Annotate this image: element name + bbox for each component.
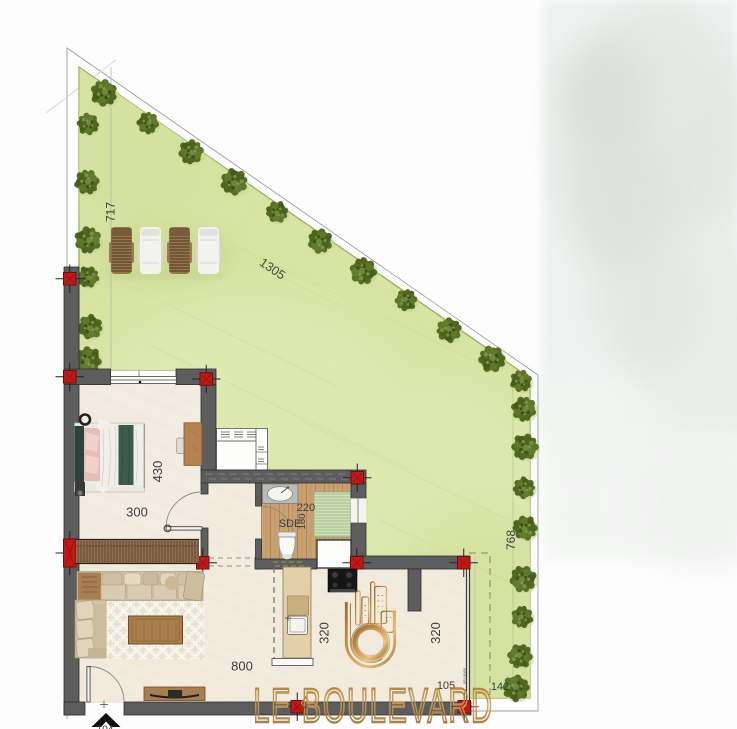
svg-text:430: 430 xyxy=(150,461,165,483)
svg-text:717: 717 xyxy=(104,202,118,222)
svg-text:LE BOULEVARD: LE BOULEVARD xyxy=(253,680,493,729)
svg-text:320: 320 xyxy=(316,622,331,644)
svg-text:SDE: SDE xyxy=(279,518,302,530)
svg-text:768: 768 xyxy=(504,530,518,550)
svg-text:320: 320 xyxy=(428,622,443,644)
svg-text:800: 800 xyxy=(231,658,253,673)
svg-text:104: 104 xyxy=(97,725,114,729)
svg-text:220: 220 xyxy=(297,502,315,514)
svg-text:300: 300 xyxy=(126,504,148,519)
